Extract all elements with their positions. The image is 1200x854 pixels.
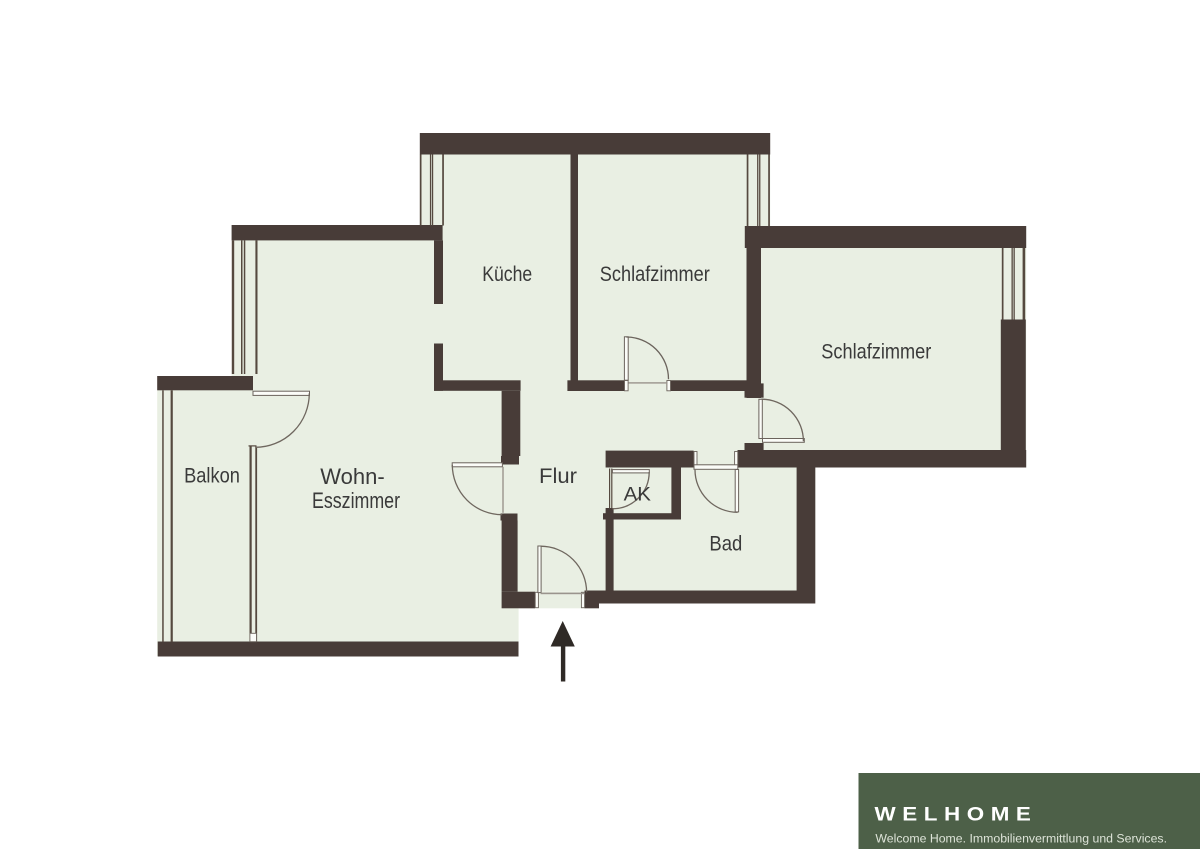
svg-text:Wohn-: Wohn- xyxy=(320,464,384,489)
svg-text:Flur: Flur xyxy=(539,464,577,487)
svg-text:Welcome Home. Immobilienvermit: Welcome Home. Immobilienvermittlung und … xyxy=(875,832,1167,846)
svg-text:Balkon: Balkon xyxy=(184,464,240,487)
svg-text:AK: AK xyxy=(624,484,651,505)
svg-text:Schlafzimmer: Schlafzimmer xyxy=(600,263,710,287)
svg-text:Schlafzimmer: Schlafzimmer xyxy=(821,340,931,364)
svg-text:Esszimmer: Esszimmer xyxy=(312,489,400,513)
svg-text:Bad: Bad xyxy=(709,532,742,555)
svg-text:Küche: Küche xyxy=(482,263,532,287)
